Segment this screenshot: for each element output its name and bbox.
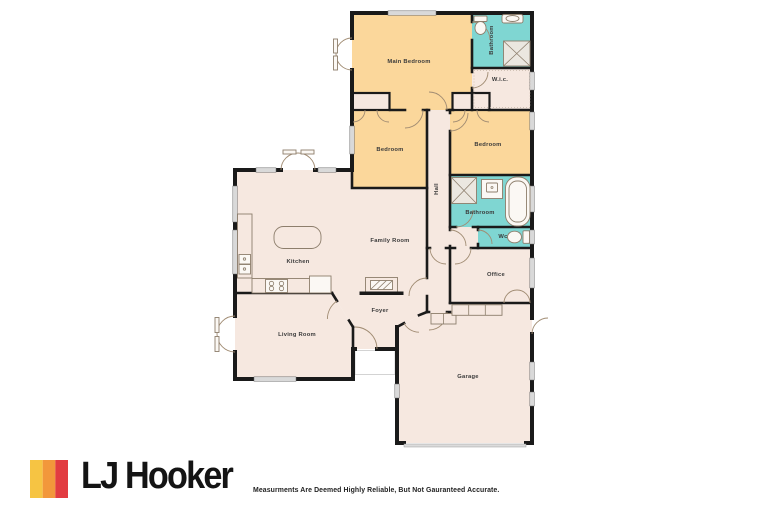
room-label-living-room: Living Room <box>278 332 316 338</box>
kitchen-counter-bottom <box>252 276 331 293</box>
entry-porch <box>355 351 395 375</box>
fireplace-icon <box>360 278 404 296</box>
toilet-icon <box>508 231 530 244</box>
door-leaf <box>283 150 296 154</box>
door-family-french <box>281 153 315 170</box>
room-label-family-room: Family Room <box>370 238 409 244</box>
window-kitchen-left <box>233 230 238 274</box>
room-label-garage: Garage <box>457 374 479 380</box>
window-garage-left <box>395 384 400 398</box>
kitchen-counter-left <box>238 214 253 278</box>
logo-stripe-red <box>55 460 68 498</box>
bathtub-icon <box>506 177 531 226</box>
room-label-bedroom-left: Bedroom <box>376 147 403 153</box>
window-garage-right-b <box>530 392 535 406</box>
room-label-office: Office <box>487 272 505 278</box>
kitchen-island <box>274 227 321 249</box>
room-label-bedroom-right: Bedroom <box>474 142 501 148</box>
window-bedroom-left <box>350 126 355 154</box>
window-main-bedroom-top <box>388 11 436 16</box>
logo-stripe-orange <box>43 460 56 498</box>
shower-icon <box>504 41 531 66</box>
disclaimer-text: Measurments Are Deemed Highly Reliable, … <box>253 487 499 494</box>
window-wic <box>530 72 535 90</box>
door-leaf <box>215 337 219 352</box>
door-garage-exterior <box>532 318 548 334</box>
stove-icon <box>266 280 288 293</box>
room-label-main-bedroom: Main Bedroom <box>387 59 430 65</box>
window-family-top-left <box>256 168 276 173</box>
door-leaf <box>334 56 338 70</box>
window-wc <box>530 230 535 244</box>
window-living-bottom <box>254 377 296 382</box>
door-leaf <box>334 39 338 53</box>
brand-name: LJ Hooker <box>81 455 232 498</box>
floorplan-canvas: Main Bedroom Bathroom W.i.c. Bedroom Bed… <box>0 0 768 512</box>
room-label-bathroom-top: Bathroom <box>489 25 495 54</box>
room-label-wc: Wc <box>498 234 508 240</box>
closet-bedroom-left <box>353 93 390 110</box>
window-garage-right-a <box>530 362 535 380</box>
room-label-wic: W.i.c. <box>492 77 508 83</box>
window-bathroom-mid <box>530 186 535 212</box>
window-family-top-right <box>318 168 336 173</box>
door-living-french <box>217 316 235 352</box>
door-leaf <box>215 318 219 333</box>
room-label-hall: Hall <box>434 183 440 195</box>
window-family-left <box>233 186 238 222</box>
logo-stripe-yellow <box>30 460 43 498</box>
room-hall-floor <box>427 110 450 248</box>
sink-icon <box>482 180 503 199</box>
room-label-foyer: Foyer <box>371 308 389 314</box>
garage-door-panel <box>404 444 526 447</box>
door-leaf <box>301 150 314 154</box>
window-office <box>530 258 535 288</box>
sink-icon <box>502 15 523 24</box>
room-label-kitchen: Kitchen <box>286 259 309 265</box>
door-main-bedroom-french <box>336 38 352 70</box>
toilet-icon <box>474 16 487 35</box>
ljhooker-logo-icon <box>30 460 68 498</box>
floorplan-page: Main Bedroom Bathroom W.i.c. Bedroom Bed… <box>0 0 768 512</box>
window-bedroom-right <box>530 112 535 130</box>
room-label-bathroom-mid: Bathroom <box>465 210 494 216</box>
room-garage-floor <box>397 303 532 443</box>
shower-icon <box>452 178 477 204</box>
